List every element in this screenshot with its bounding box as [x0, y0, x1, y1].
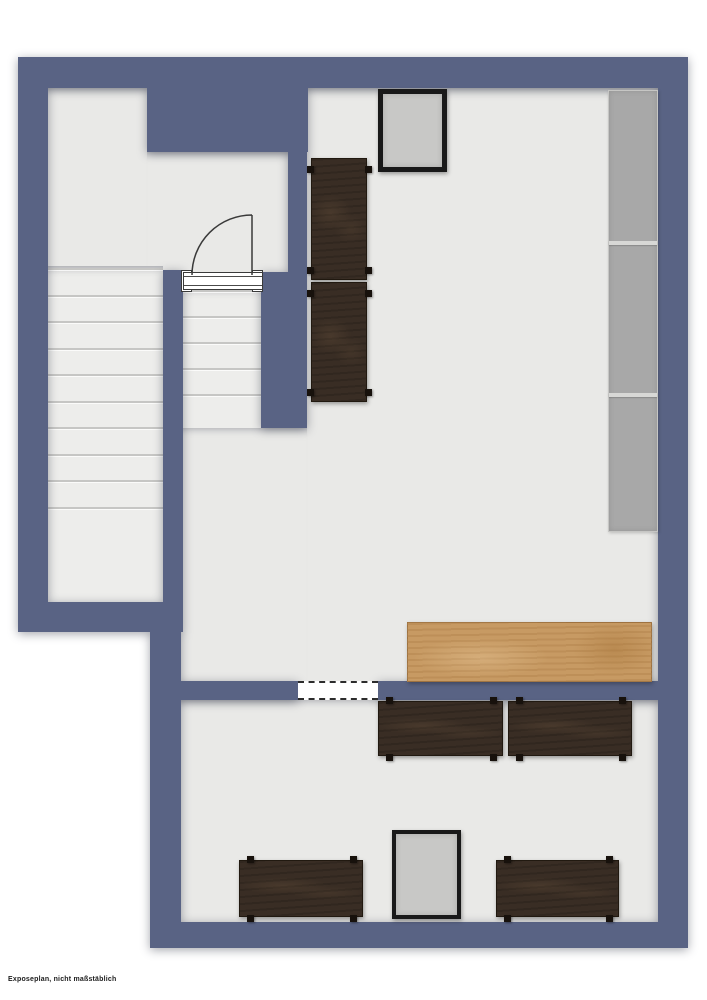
- table-leg: [504, 915, 511, 922]
- table-leg: [365, 290, 372, 297]
- disclaimer-text: Exposeplan, nicht maßstäblich: [8, 976, 117, 983]
- table-leg: [386, 754, 393, 761]
- display-frame-bottom: [392, 830, 461, 919]
- table-leg: [350, 856, 357, 863]
- table-leg: [490, 754, 497, 761]
- table-leg: [490, 697, 497, 704]
- table-leg: [307, 166, 314, 173]
- table-leg: [619, 697, 626, 704]
- table-leg: [307, 389, 314, 396]
- door-threshold: [184, 276, 262, 286]
- table-leg: [504, 856, 511, 863]
- wall-top-notch: [147, 57, 308, 152]
- dark-table-upper-1: [311, 158, 367, 280]
- table-leg: [307, 267, 314, 274]
- floor-plan: [0, 0, 707, 1000]
- shelf-unit-right: [608, 90, 658, 532]
- table-leg: [606, 915, 613, 922]
- wall-stair-bottom: [18, 602, 181, 632]
- table-leg: [350, 915, 357, 922]
- wall-stair-divider: [163, 270, 183, 632]
- wall-midstair-right: [261, 272, 307, 428]
- dark-table-bottom-1: [239, 860, 363, 917]
- table-leg: [606, 856, 613, 863]
- wood-counter: [407, 622, 652, 682]
- table-leg: [365, 267, 372, 274]
- table-leg: [619, 754, 626, 761]
- outer-wall-left-lower: [150, 632, 181, 948]
- table-leg: [386, 697, 393, 704]
- shelf-divider: [609, 241, 657, 245]
- wall-bottomroom-top-left: [181, 681, 298, 700]
- wall-mid-vertical: [288, 152, 307, 278]
- outer-wall-left-upper: [18, 57, 48, 632]
- table-leg: [247, 856, 254, 863]
- display-frame-top: [378, 89, 447, 172]
- dark-table-upper-2: [311, 282, 367, 402]
- dark-table-mid-1: [378, 701, 503, 756]
- table-leg: [365, 389, 372, 396]
- table-leg: [516, 754, 523, 761]
- table-leg: [516, 697, 523, 704]
- walls-group: [0, 0, 707, 1000]
- door-swing-arc: [190, 213, 254, 277]
- shelf-divider: [609, 393, 657, 397]
- table-leg: [247, 915, 254, 922]
- dark-table-bottom-2: [496, 860, 619, 917]
- outer-wall-right: [658, 57, 688, 948]
- table-leg: [365, 166, 372, 173]
- outer-wall-top: [18, 57, 688, 88]
- dark-table-mid-2: [508, 701, 632, 756]
- opening-bottom-room: [298, 681, 378, 700]
- outer-wall-bottom: [150, 922, 688, 948]
- table-leg: [307, 290, 314, 297]
